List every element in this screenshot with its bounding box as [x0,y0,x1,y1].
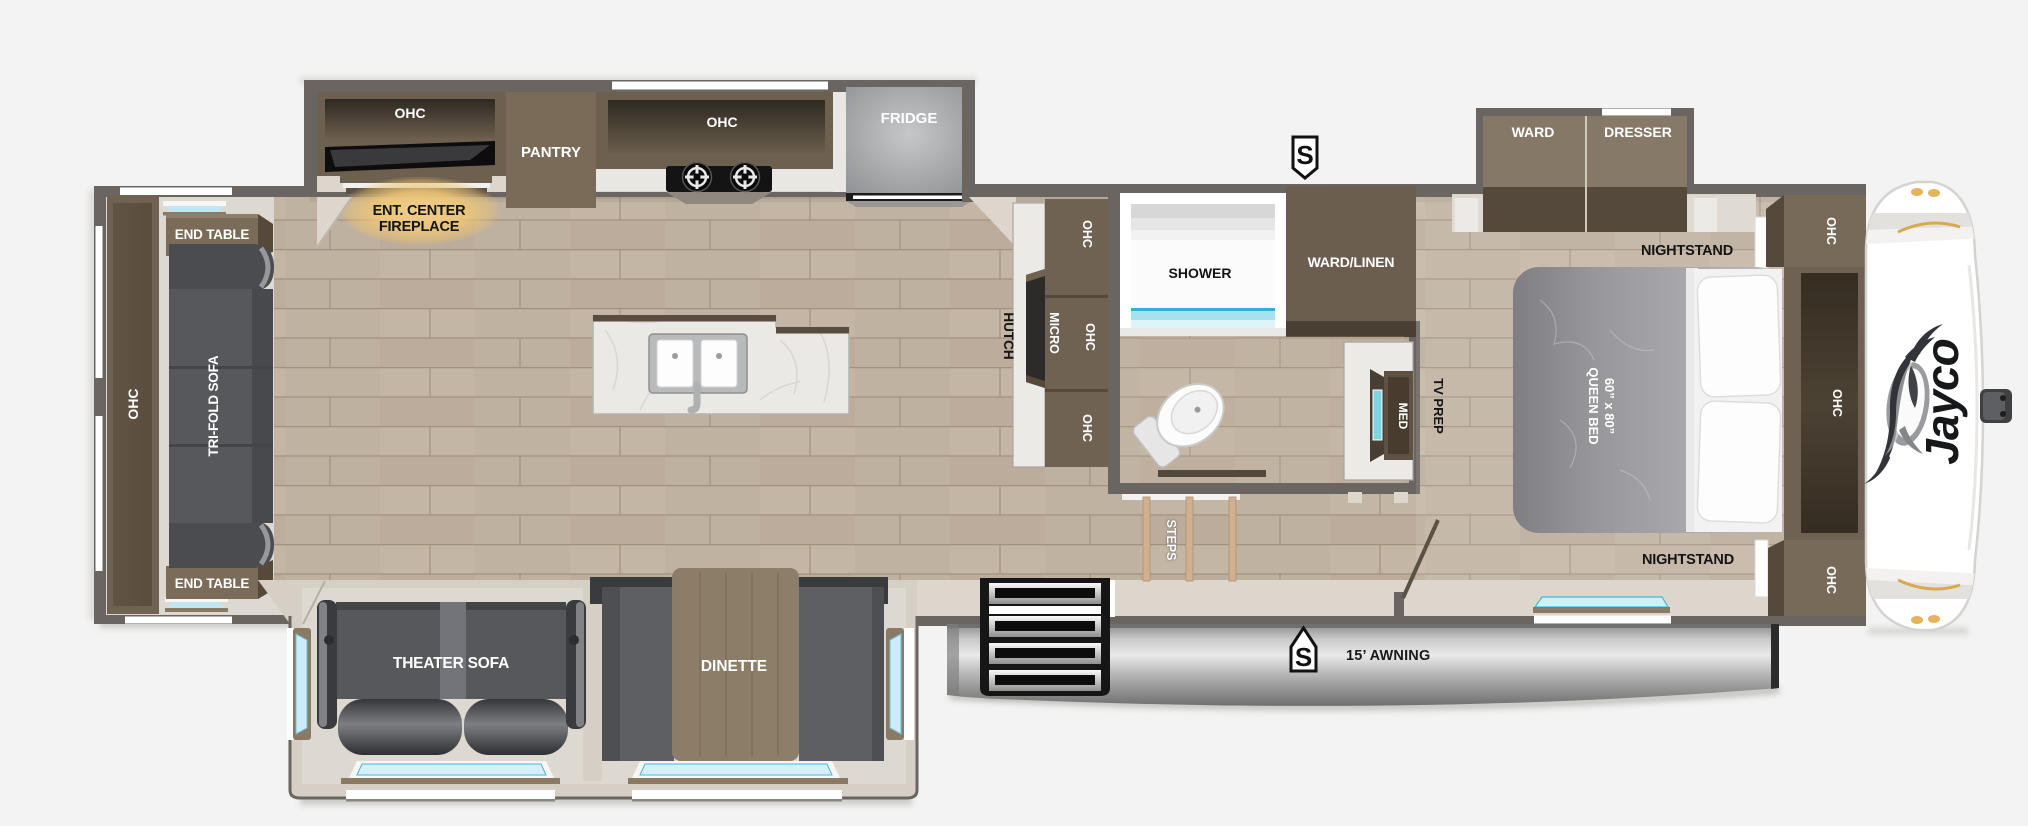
svg-text:STEPS: STEPS [1164,520,1178,561]
svg-text:OHC: OHC [1824,566,1838,594]
svg-text:THEATER SOFA: THEATER SOFA [393,655,509,672]
svg-text:OHC: OHC [125,388,141,419]
svg-text:PANTRY: PANTRY [521,144,581,161]
svg-text:TRI-FOLD SOFA: TRI-FOLD SOFA [206,355,221,456]
svg-text:15’ AWNING: 15’ AWNING [1346,648,1430,664]
svg-text:HUTCH: HUTCH [1001,312,1016,359]
svg-text:NIGHTSTAND: NIGHTSTAND [1642,552,1734,568]
svg-text:DRESSER: DRESSER [1604,124,1672,140]
svg-text:WARD/LINEN: WARD/LINEN [1308,254,1395,270]
svg-text:MED: MED [1396,403,1410,430]
svg-text:ENT. CENTER: ENT. CENTER [373,203,467,219]
svg-text:OHC: OHC [1080,414,1094,442]
svg-text:MICRO: MICRO [1047,312,1061,354]
svg-text:WARD: WARD [1512,124,1555,140]
svg-text:SHOWER: SHOWER [1169,265,1232,281]
svg-text:S: S [1296,140,1313,170]
svg-text:OHC: OHC [394,105,425,121]
svg-text:OHC: OHC [1080,220,1094,248]
svg-text:QUEEN BED: QUEEN BED [1586,367,1601,444]
svg-text:END TABLE: END TABLE [175,227,250,242]
svg-text:OHC: OHC [1083,323,1097,351]
svg-text:Jayco: Jayco [1916,339,1968,464]
svg-text:TV PREP: TV PREP [1431,378,1446,434]
svg-text:DINETTE: DINETTE [701,658,767,675]
svg-text:FRIDGE: FRIDGE [881,110,938,127]
svg-text:END TABLE: END TABLE [175,576,250,591]
svg-text:FIREPLACE: FIREPLACE [379,219,460,235]
svg-text:S: S [1295,642,1312,672]
svg-text:OHC: OHC [1830,389,1844,417]
svg-text:NIGHTSTAND: NIGHTSTAND [1641,243,1733,259]
svg-text:OHC: OHC [706,114,737,130]
svg-text:60” x 80”: 60” x 80” [1602,378,1617,434]
svg-text:OHC: OHC [1824,217,1838,245]
